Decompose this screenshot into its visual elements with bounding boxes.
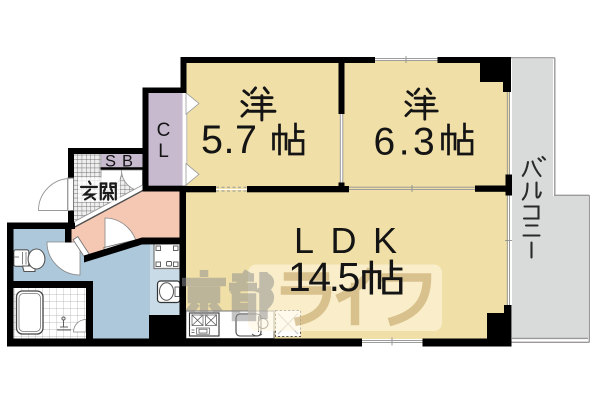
svg-text:L: L [158, 141, 169, 162]
svg-text:SB: SB [105, 153, 139, 171]
svg-text:5.7: 5.7 [201, 118, 257, 162]
svg-text:6.3: 6.3 [374, 121, 439, 164]
svg-text:14.5: 14.5 [288, 254, 359, 300]
svg-text:C: C [157, 120, 171, 141]
